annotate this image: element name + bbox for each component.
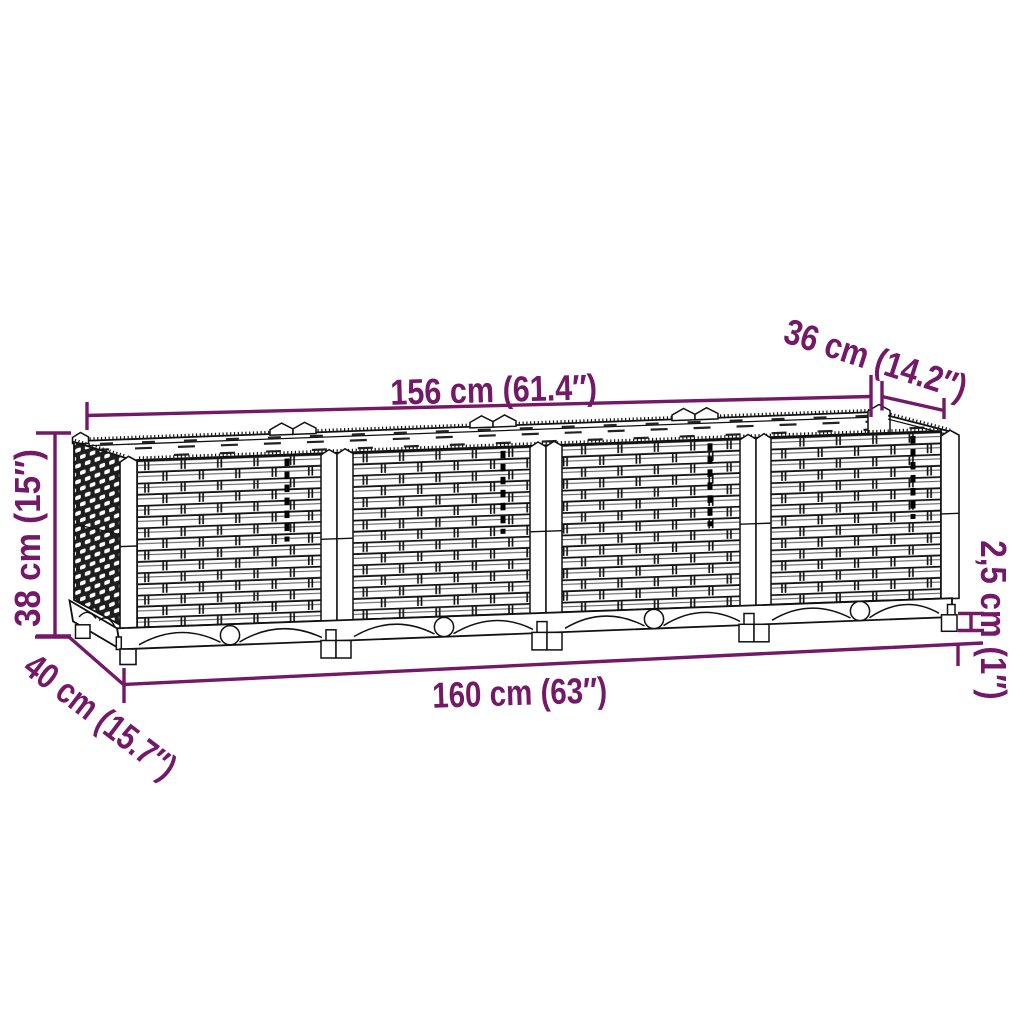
svg-text:36 cm (14.2″): 36 cm (14.2″)	[779, 312, 972, 409]
svg-text:156 cm (61.4″): 156 cm (61.4″)	[390, 368, 598, 413]
svg-text:2,5 cm (1″): 2,5 cm (1″)	[972, 540, 1013, 699]
svg-text:160 cm (63″): 160 cm (63″)	[432, 669, 608, 715]
svg-text:38 cm (15″): 38 cm (15″)	[9, 449, 49, 627]
